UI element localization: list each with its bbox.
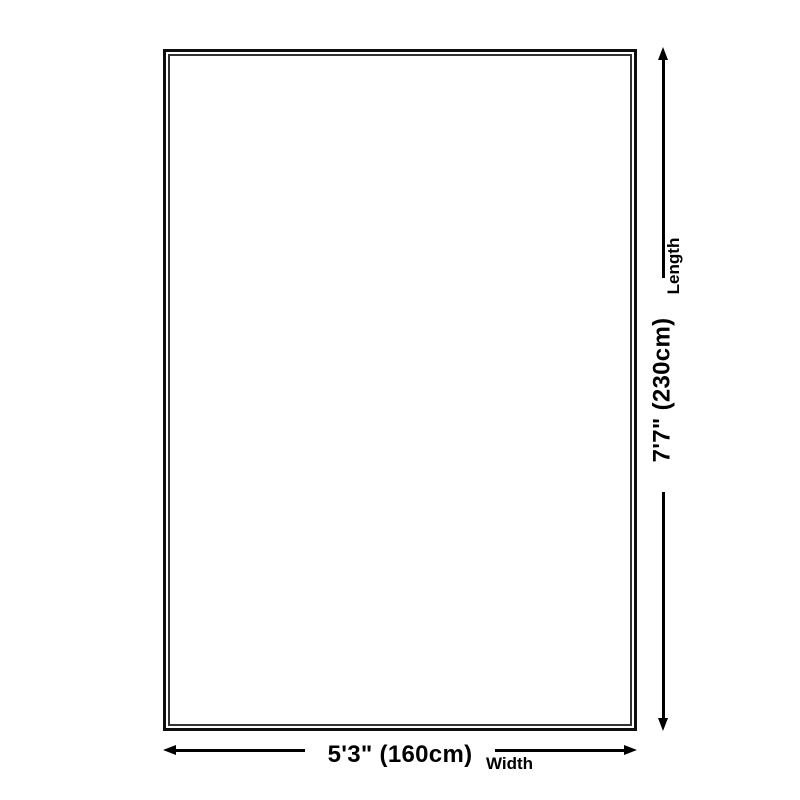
rug-outline (163, 49, 637, 731)
arrow-left-icon (163, 745, 176, 755)
arrow-up-icon (658, 47, 668, 60)
arrow-right-icon (624, 745, 637, 755)
rug-dimension-diagram: Length 7'7" (230cm) 5'3" (160cm) Width (0, 0, 800, 800)
rug-inner-border (168, 54, 632, 726)
arrow-down-icon (658, 718, 668, 731)
width-arrow-right-line (495, 749, 624, 752)
length-value: 7'7" (230cm) (650, 318, 675, 463)
length-arrow-bottom-line (662, 492, 665, 718)
width-value: 5'3" (160cm) (303, 742, 497, 767)
width-arrow-left-line (176, 749, 305, 752)
width-label: Width (486, 755, 533, 773)
length-label: Length (665, 238, 683, 295)
